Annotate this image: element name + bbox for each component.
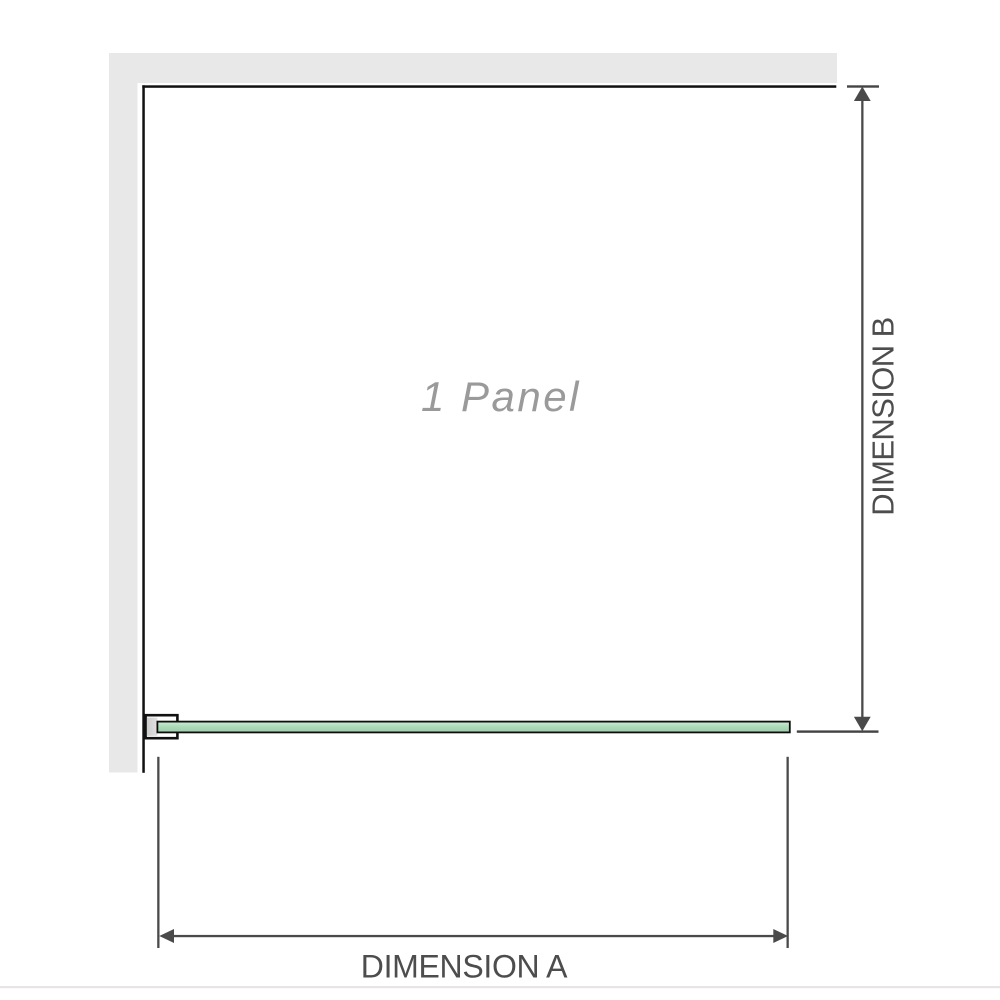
svg-text:DIMENSION B: DIMENSION B bbox=[866, 317, 901, 515]
svg-text:1 Panel: 1 Panel bbox=[421, 373, 581, 420]
svg-text:DIMENSION A: DIMENSION A bbox=[361, 949, 568, 985]
